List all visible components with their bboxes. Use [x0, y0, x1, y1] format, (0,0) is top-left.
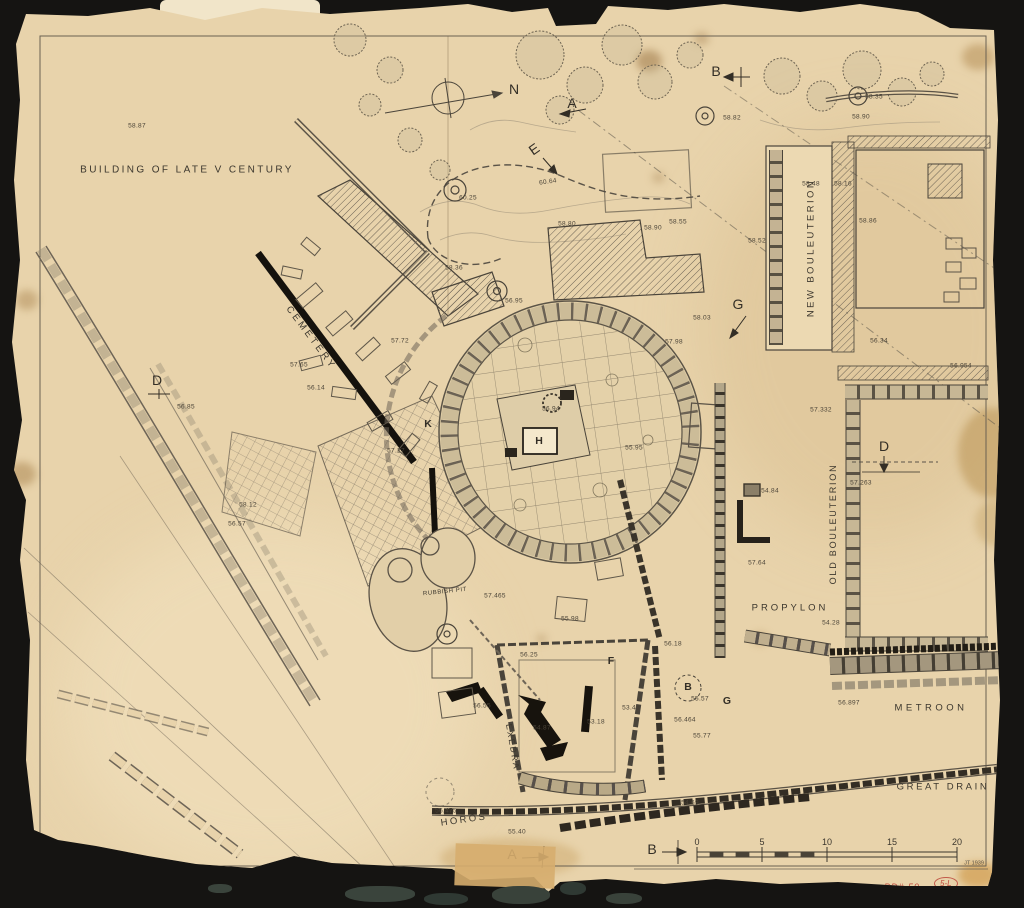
old-bouleuterion [838, 366, 988, 648]
exedra-complex [497, 640, 648, 800]
plan-drawing [0, 0, 1024, 908]
catalog-number: A 4334 [68, 863, 107, 874]
tape-repair [454, 843, 555, 888]
drawing-number-red: PD# 59 [884, 882, 920, 892]
new-bouleuterion [766, 136, 990, 352]
propylon-structures [740, 484, 830, 650]
scale-bar [697, 847, 957, 862]
horos-wall-chain [58, 694, 454, 854]
paper-fragment [424, 893, 468, 905]
metroon-stones [830, 646, 1004, 686]
paper-fragment [560, 882, 586, 895]
compass-rose [385, 78, 502, 118]
paper-fragment [208, 884, 232, 893]
paper-fragment [606, 893, 642, 904]
paper-sheet: BUILDING OF LATE V CENTURYCEMETERYNEW BO… [0, 0, 1024, 908]
paper-fragment [492, 886, 550, 904]
north-annex-structures [318, 150, 704, 326]
tholos-central-platform [497, 385, 590, 470]
red-circled-mark: 5-L [934, 877, 958, 890]
paper-fragment [345, 886, 415, 902]
scanned-plan-sheet: BUILDING OF LATE V CENTURYCEMETERYNEW BO… [0, 0, 1024, 908]
